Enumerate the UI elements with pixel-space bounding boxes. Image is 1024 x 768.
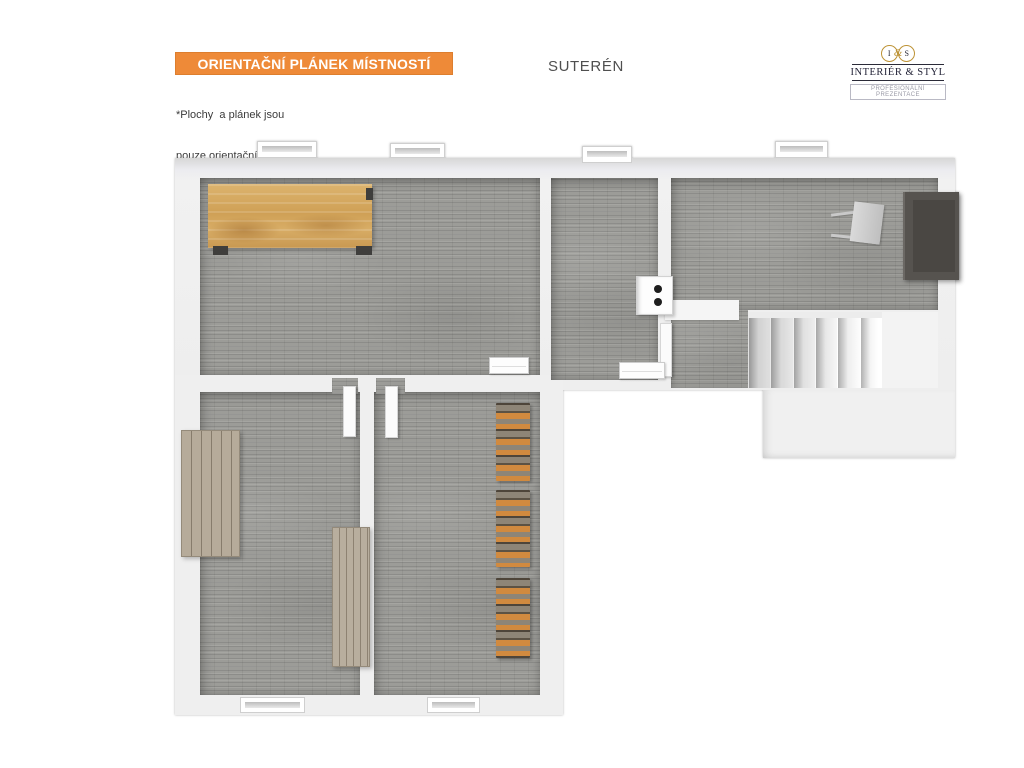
wooden-table [208, 184, 372, 248]
dark-cabinet [903, 192, 959, 280]
floorplan [0, 0, 1024, 768]
window-bottom-1 [240, 697, 305, 713]
radiator-boiler-room [619, 362, 665, 379]
window-bottom-2 [427, 697, 480, 713]
table-foot-icon [366, 188, 373, 200]
firewood-stack-3 [496, 578, 530, 658]
door-leaf-bottom-middle-room [385, 386, 398, 438]
shelf-cabinet [332, 527, 370, 667]
table-foot-icon [213, 246, 228, 255]
window-glass-icon [587, 151, 627, 157]
folding-chair [850, 201, 885, 244]
window-glass-icon [245, 702, 300, 708]
stair-step [815, 318, 837, 388]
stair-step [793, 318, 815, 388]
window-top-4 [775, 141, 828, 158]
logo-ampersand-icon: & [894, 47, 903, 59]
window-glass-icon [780, 146, 823, 152]
stair-corridor-floor [671, 310, 748, 388]
firewood-stack-1 [496, 403, 530, 481]
stair-step [860, 318, 882, 388]
window-glass-icon [432, 702, 475, 708]
stair-step [837, 318, 859, 388]
firewood-stack-2 [496, 490, 530, 567]
window-glass-icon [262, 146, 312, 152]
window-top-3 [582, 146, 632, 163]
window-top-2 [390, 143, 445, 158]
stair-top-landing [882, 312, 938, 388]
heater-port-icon [654, 298, 662, 306]
window-glass-icon [395, 148, 440, 154]
page-canvas: ORIENTAČNÍ PLÁNEK MÍSTNOSTÍ *Plochy a pl… [0, 0, 1024, 768]
water-heater [636, 276, 673, 315]
wardrobe [181, 430, 240, 557]
stair-step [770, 318, 792, 388]
table-foot-icon [356, 246, 372, 255]
staircase [748, 312, 882, 388]
interior-wall-stub [665, 300, 739, 320]
dark-cabinet-panel [913, 200, 955, 272]
stair-step [748, 318, 770, 388]
heater-port-icon [654, 285, 662, 293]
window-top-1 [257, 141, 317, 158]
room-top-right-floor [671, 178, 938, 310]
door-leaf-bottom-left-room [343, 386, 356, 437]
radiator-top-left-room [489, 357, 529, 374]
stair-landing-area [763, 390, 955, 458]
